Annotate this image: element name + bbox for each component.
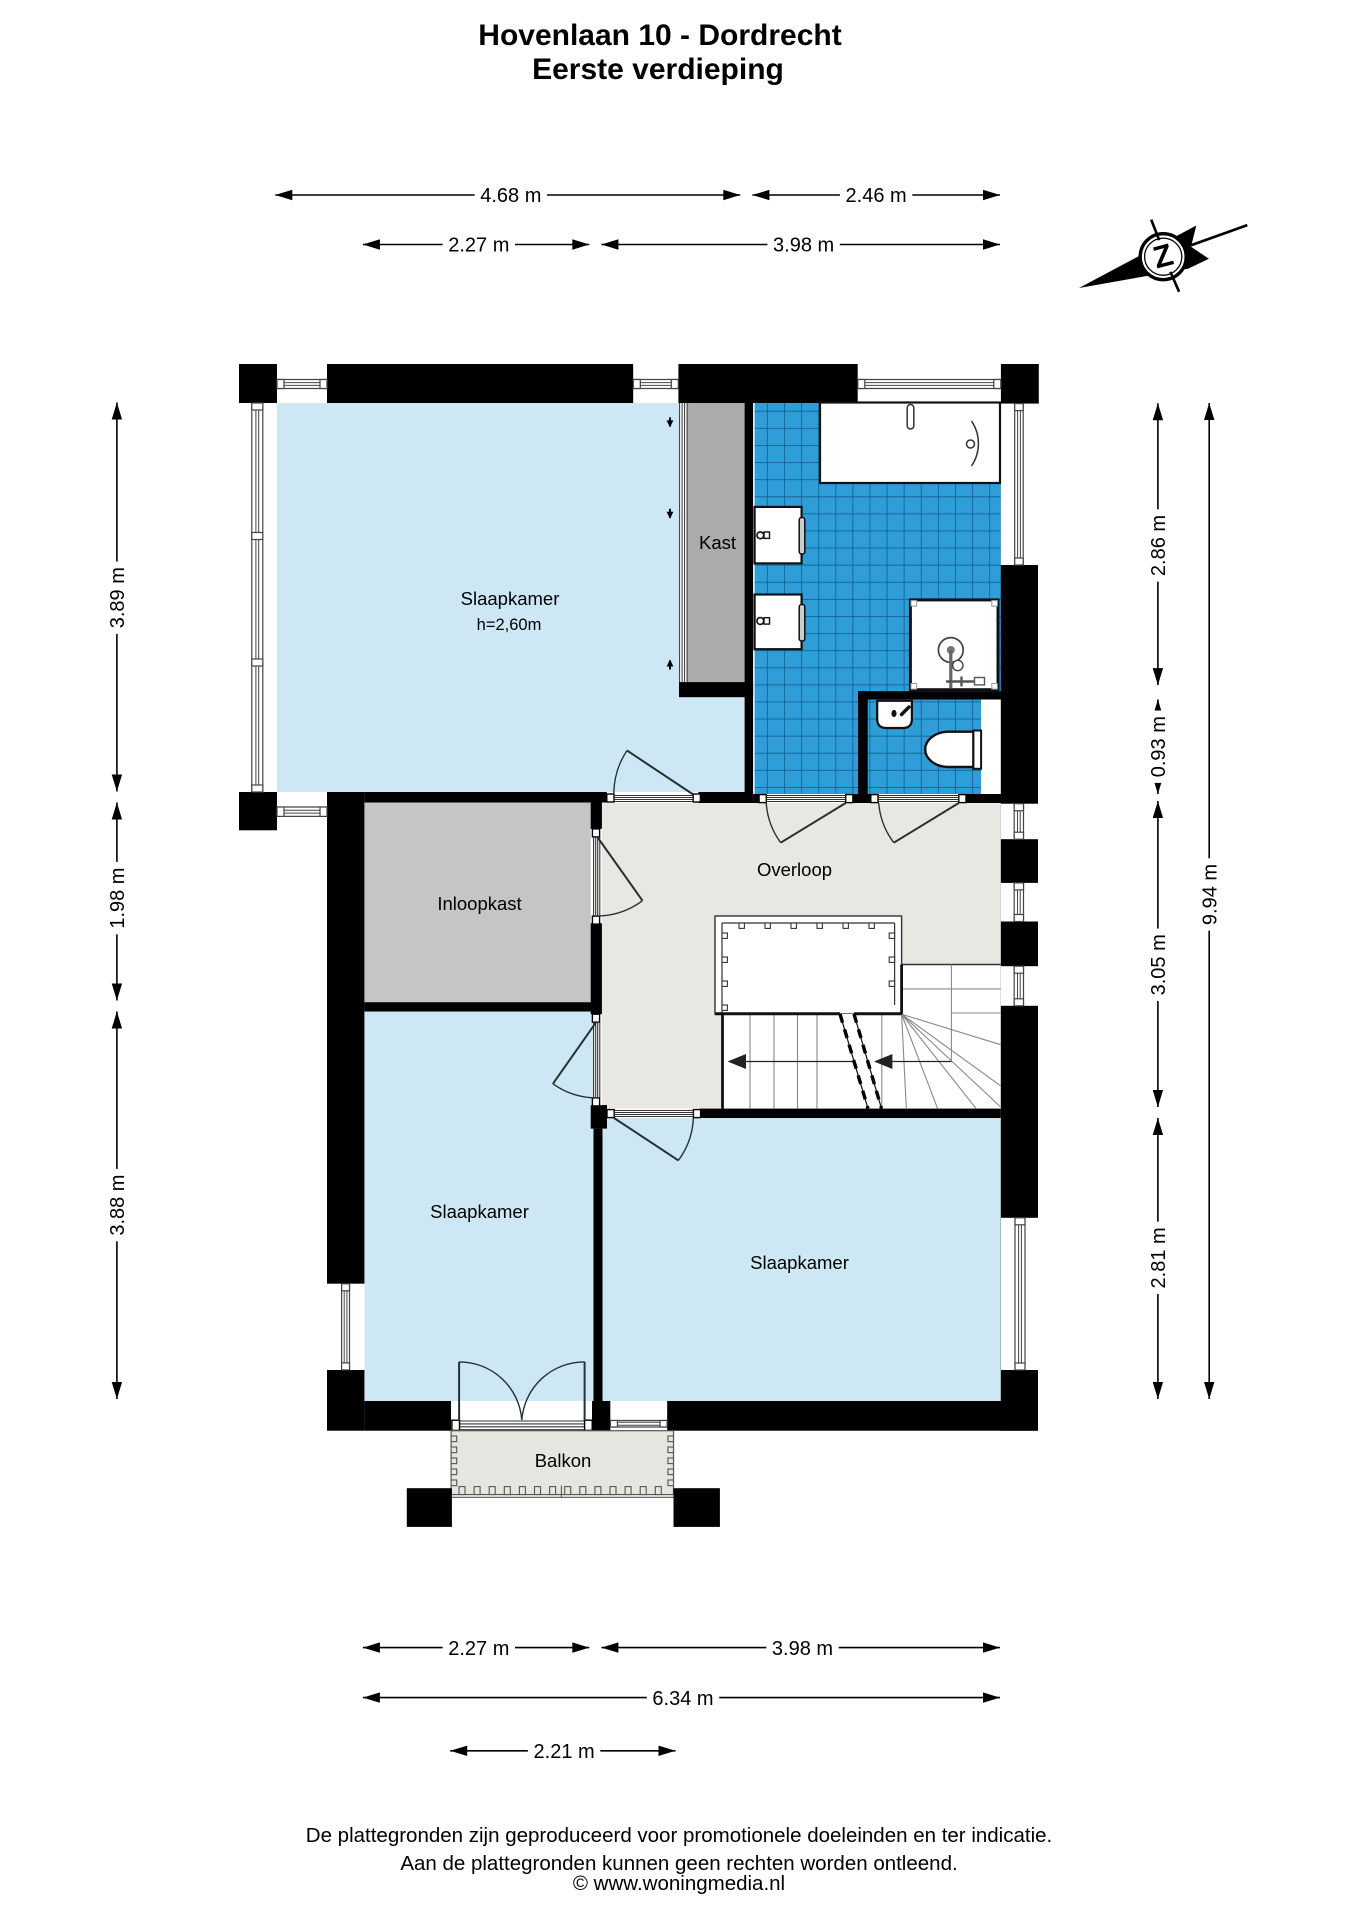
svg-text:2.27 m: 2.27 m xyxy=(448,235,509,257)
svg-text:2.86 m: 2.86 m xyxy=(1148,515,1170,576)
svg-text:0.93 m: 0.93 m xyxy=(1148,716,1170,777)
svg-text:Overloop: Overloop xyxy=(757,859,832,880)
svg-text:2.81 m: 2.81 m xyxy=(1148,1227,1170,1288)
svg-text:2.27 m: 2.27 m xyxy=(448,1638,509,1660)
svg-text:1.98 m: 1.98 m xyxy=(107,868,129,929)
svg-text:Balkon: Balkon xyxy=(535,1450,592,1471)
svg-text:De plattegronden zijn geproduc: De plattegronden zijn geproduceerd voor … xyxy=(306,1824,1052,1847)
svg-text:3.05 m: 3.05 m xyxy=(1148,934,1170,995)
svg-text:3.89 m: 3.89 m xyxy=(107,567,129,628)
svg-text:2.46 m: 2.46 m xyxy=(846,185,907,207)
svg-text:3.98 m: 3.98 m xyxy=(772,1638,833,1660)
svg-text:2.21 m: 2.21 m xyxy=(534,1741,595,1763)
svg-text:Slaapkamer: Slaapkamer xyxy=(750,1252,849,1273)
svg-text:Kast: Kast xyxy=(699,532,736,553)
svg-text:Eerste verdieping: Eerste verdieping xyxy=(532,53,784,86)
svg-text:h=2,60m: h=2,60m xyxy=(477,616,542,634)
svg-text:Slaapkamer: Slaapkamer xyxy=(430,1201,529,1222)
svg-text:9.94 m: 9.94 m xyxy=(1199,864,1221,925)
svg-text:3.88 m: 3.88 m xyxy=(107,1175,129,1236)
svg-text:3.98 m: 3.98 m xyxy=(773,235,834,257)
svg-text:© www.woningmedia.nl: © www.woningmedia.nl xyxy=(573,1872,785,1895)
svg-text:4.68 m: 4.68 m xyxy=(480,185,541,207)
svg-text:Inloopkast: Inloopkast xyxy=(437,893,521,914)
svg-text:6.34 m: 6.34 m xyxy=(652,1688,713,1710)
svg-text:Slaapkamer: Slaapkamer xyxy=(461,588,560,609)
svg-text:Hovenlaan 10 - Dordrecht: Hovenlaan 10 - Dordrecht xyxy=(478,19,841,52)
